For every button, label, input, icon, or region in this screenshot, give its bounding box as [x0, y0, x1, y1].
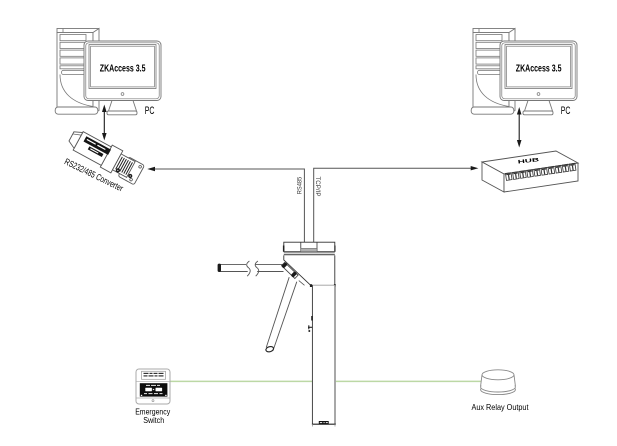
svg-text:Switch: Switch [143, 416, 164, 425]
svg-text:Emergency: Emergency [135, 407, 170, 416]
svg-text:TCP/IP: TCP/IP [314, 177, 321, 198]
svg-text:RS485: RS485 [297, 176, 304, 194]
svg-text:Aux Relay Output: Aux Relay Output [472, 403, 530, 412]
